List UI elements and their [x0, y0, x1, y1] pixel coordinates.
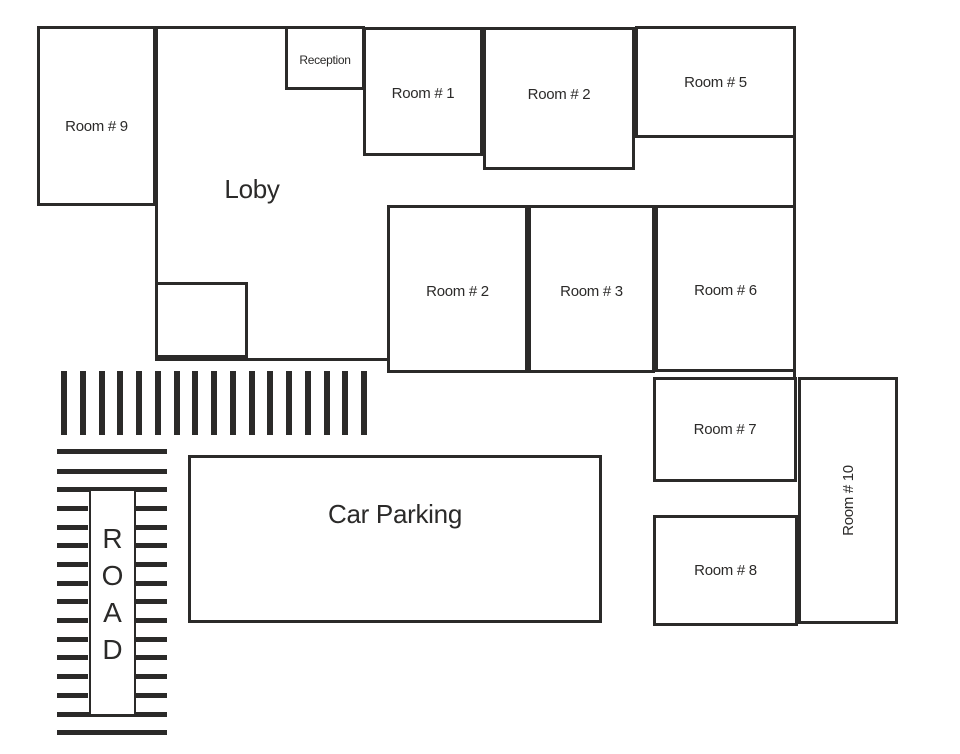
room-10-label: Room # 10	[841, 465, 856, 536]
road-crosswalk-bar	[361, 371, 367, 435]
room-1: Room # 1	[363, 27, 483, 156]
road-crosswalk-bar	[174, 371, 180, 435]
room-6-label: Room # 6	[694, 283, 757, 298]
loby-alcove	[155, 282, 248, 358]
room-3: Room # 3	[528, 205, 655, 373]
car-parking: Car Parking	[188, 455, 602, 623]
road-stripe-side	[136, 655, 167, 660]
road-stripe-side	[57, 525, 88, 530]
room-10: Room # 10	[798, 377, 898, 624]
road-stripe-side	[57, 599, 88, 604]
road-crosswalk-bar	[61, 371, 67, 435]
road-stripe-side	[57, 543, 88, 548]
road-stripe-side	[136, 506, 167, 511]
loby-bottom-wall	[155, 358, 389, 361]
road-stripe-side	[136, 581, 167, 586]
road-crosswalk-bar	[155, 371, 161, 435]
road-crosswalk-bar	[117, 371, 123, 435]
loby-left-wall	[155, 26, 158, 361]
road-stripe-side	[136, 562, 167, 567]
reception: Reception	[285, 26, 365, 90]
road-stripe-side	[57, 637, 88, 642]
road-letter-d: D	[102, 631, 122, 668]
road-label-box: ROAD	[89, 489, 136, 716]
road-stripe-side	[57, 618, 88, 623]
road-stripe-side	[136, 525, 167, 530]
road-stripe-full	[57, 449, 167, 454]
road-stripe-side	[136, 618, 167, 623]
room-9-label: Room # 9	[65, 119, 128, 134]
road-crosswalk-bar	[80, 371, 86, 435]
road-letter-a: A	[103, 594, 122, 631]
room-9: Room # 9	[37, 26, 156, 206]
room-7-label: Room # 7	[694, 422, 757, 437]
road-stripe-side	[57, 674, 88, 679]
road-crosswalk-bar	[286, 371, 292, 435]
road-stripe-side	[57, 506, 88, 511]
room-8: Room # 8	[653, 515, 798, 626]
room-3-label: Room # 3	[560, 284, 623, 299]
car-parking-label: Car Parking	[328, 501, 462, 527]
top-wall-segment	[155, 26, 288, 29]
room-5-label: Room # 5	[684, 75, 747, 90]
road-stripe-full	[57, 730, 167, 735]
room-6: Room # 6	[655, 205, 796, 372]
road-crosswalk-bar	[192, 371, 198, 435]
road-crosswalk-bar	[342, 371, 348, 435]
road-stripe-side	[57, 581, 88, 586]
floor-plan-canvas: Room # 9ReceptionRoom # 1Room # 2Room # …	[0, 0, 960, 754]
road-stripe-side	[136, 543, 167, 548]
road-stripe-side	[57, 655, 88, 660]
road-stripe-side	[57, 562, 88, 567]
room-8-label: Room # 8	[694, 563, 757, 578]
room-2-top: Room # 2	[483, 27, 635, 170]
road-crosswalk-bar	[211, 371, 217, 435]
road-crosswalk-bar	[249, 371, 255, 435]
road-crosswalk-bar	[324, 371, 330, 435]
road-stripe-side	[136, 599, 167, 604]
reception-label: Reception	[299, 54, 350, 66]
room-1-label: Room # 1	[392, 86, 455, 101]
room-2-middle: Room # 2	[387, 205, 528, 373]
road-stripe-side	[136, 693, 167, 698]
road-stripe-full	[57, 469, 167, 474]
road-crosswalk-bar	[267, 371, 273, 435]
right-wall-segment	[793, 136, 796, 380]
room-2-top-label: Room # 2	[528, 87, 591, 102]
road-crosswalk-bar	[99, 371, 105, 435]
road-stripe-side	[136, 674, 167, 679]
loby-label: Loby	[224, 176, 279, 202]
room-5: Room # 5	[635, 26, 796, 138]
road-letter-o: O	[102, 557, 124, 594]
road-crosswalk-bar	[230, 371, 236, 435]
room-2-middle-label: Room # 2	[426, 284, 489, 299]
road-stripe-side	[136, 637, 167, 642]
road-stripe-side	[57, 693, 88, 698]
road-letter-r: R	[102, 520, 122, 557]
road-crosswalk-bar	[305, 371, 311, 435]
room-7: Room # 7	[653, 377, 797, 482]
road-crosswalk-bar	[136, 371, 142, 435]
